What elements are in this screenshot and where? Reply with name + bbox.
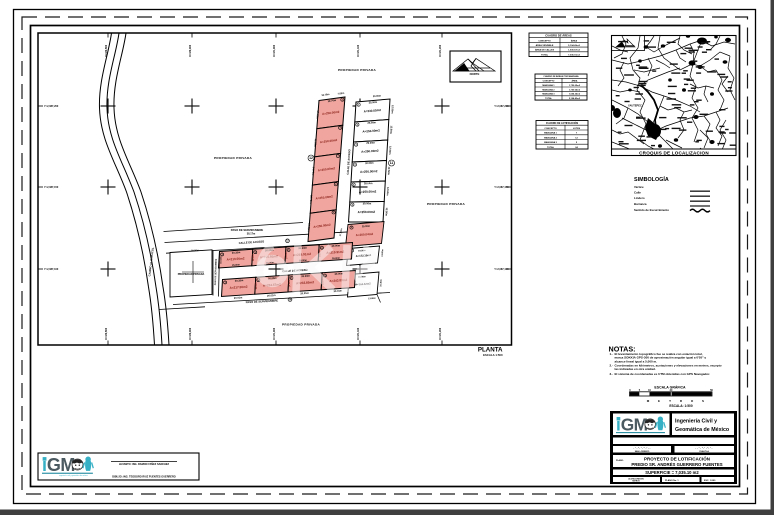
svg-text:PROPIEDAD PRIVADA: PROPIEDAD PRIVADA xyxy=(214,156,253,160)
svg-text:CONCEPTO: CONCEPTO xyxy=(538,40,551,42)
svg-text:Y=2,087,100: Y=2,087,100 xyxy=(494,268,509,271)
svg-text:29.00m: 29.00m xyxy=(191,250,199,252)
svg-text:DIBUJO: ING. TEODORO RUIZ: DIBUJO: ING. TEODORO RUIZ FUENTES GUERRE… xyxy=(112,476,176,479)
svg-text:20.01m: 20.01m xyxy=(267,294,276,298)
svg-text:24: 24 xyxy=(575,146,578,149)
svg-text:Y=2,087,150: Y=2,087,150 xyxy=(494,186,509,189)
svg-text:SUPERFICIE = 7,035.10 m2: SUPERFICIE = 7,035.10 m2 xyxy=(645,470,699,475)
svg-text:· ¹ · ²· ¹ ·´¹ ·¹ · ·: · ¹ · ²· ¹ ·´¹ ·¹ · · xyxy=(634,446,651,450)
svg-text:20.00m: 20.00m xyxy=(332,244,341,248)
svg-text:CONCEPTO: CONCEPTO xyxy=(543,81,555,83)
svg-text:12.50m: 12.50m xyxy=(384,207,388,216)
svg-text:7,035.10m2: 7,035.10m2 xyxy=(568,54,580,56)
svg-text:1,750.04m2: 1,750.04m2 xyxy=(569,88,581,91)
svg-text:CUADRO DE LOTIFICACIÓN: CUADRO DE LOTIFICACIÓN xyxy=(546,122,578,125)
svg-text:PREDIO SR. ANDRÉS GUERRERO: PREDIO SR. ANDRÉS GUERRERO FUENTES xyxy=(631,462,722,467)
svg-text:CUAUTLA: CUAUTLA xyxy=(699,450,709,453)
svg-text:MANZANA 3: MANZANA 3 xyxy=(542,93,555,96)
svg-text:12: 12 xyxy=(309,156,313,160)
svg-text:O: O xyxy=(691,399,694,403)
svg-text:GM: GM xyxy=(621,414,648,434)
svg-text:CALLE DE ACCESO: CALLE DE ACCESO xyxy=(239,239,265,245)
svg-text:ingeniería civil y geomática d: ingeniería civil y geomática de méxico xyxy=(59,474,87,477)
svg-text:SAN LORENZO: SAN LORENZO xyxy=(635,450,650,453)
svg-text:CROQUIS DE LOCALIZACION: CROQUIS DE LOCALIZACION xyxy=(639,150,709,155)
svg-text:1: 1 xyxy=(225,282,226,284)
svg-text:5,104.43m2: 5,104.43m2 xyxy=(569,97,581,100)
svg-text:20.01m: 20.01m xyxy=(234,296,243,300)
svg-text:Geomática de México: Geomática de México xyxy=(675,427,730,433)
svg-text:3: 3 xyxy=(288,250,289,252)
svg-text:CUADRO DE ÁREAS POR MANZANA: CUADRO DE ÁREAS POR MANZANA xyxy=(543,75,579,78)
svg-text:28.00m: 28.00m xyxy=(364,182,373,185)
svg-text:17.45m: 17.45m xyxy=(316,110,320,119)
svg-text:1,930.67m2: 1,930.67m2 xyxy=(568,50,580,52)
svg-text:Y=2,087,200: Y=2,087,200 xyxy=(494,105,509,108)
svg-text:MANZANA 2: MANZANA 2 xyxy=(542,88,555,91)
svg-text:CALLE DE ACCESO: CALLE DE ACCESO xyxy=(346,149,352,175)
svg-text:PLANO:: PLANO: xyxy=(616,459,624,462)
svg-text:Sentido de Escurrimiento: Sentido de Escurrimiento xyxy=(634,208,669,212)
svg-text:2: 2 xyxy=(255,252,256,254)
svg-text:1: 1 xyxy=(222,254,223,256)
svg-text:11: 11 xyxy=(390,161,394,165)
svg-text:12.50m: 12.50m xyxy=(388,146,392,155)
svg-text:13.82m: 13.82m xyxy=(368,298,376,300)
svg-text:NORTE: NORTE xyxy=(470,72,480,76)
svg-text:A=250.00m2: A=250.00m2 xyxy=(360,169,378,174)
svg-text:12.76m: 12.76m xyxy=(321,93,329,97)
svg-text:Calle: Calle xyxy=(634,191,641,195)
svg-text:3: 3 xyxy=(291,278,292,280)
svg-text:Lindero: Lindero xyxy=(634,196,645,200)
svg-text:E: E xyxy=(658,399,660,403)
svg-text:PLANO No. 1: PLANO No. 1 xyxy=(665,479,679,482)
svg-text:13.73m: 13.73m xyxy=(309,195,313,204)
svg-text:20.00m: 20.00m xyxy=(301,275,310,279)
svg-text:12.50m: 12.50m xyxy=(390,105,394,114)
svg-text:ESCALA 1:500: ESCALA 1:500 xyxy=(483,353,503,357)
svg-text:X=431,100: X=431,100 xyxy=(357,44,360,57)
svg-text:SIMBOLOGÍA: SIMBOLOGÍA xyxy=(634,175,669,183)
svg-text:1.-: 1.- xyxy=(610,352,614,356)
svg-text:20.35m: 20.35m xyxy=(232,251,241,255)
svg-text:PASO DE SERVIDUMBRE: PASO DE SERVIDUMBRE xyxy=(214,258,218,285)
svg-text:PROPIEDAD PRIVADA: PROPIEDAD PRIVADA xyxy=(178,273,205,276)
svg-text:El sistema de coordenadas es U: El sistema de coordenadas es UTM obtenid… xyxy=(615,372,711,376)
svg-text:Ingeniería Civil y: Ingeniería Civil y xyxy=(675,419,717,425)
svg-text:YAUTEPEC: YAUTEPEC xyxy=(628,104,642,108)
svg-text:METROS: METROS xyxy=(632,480,640,482)
svg-text:12.50m: 12.50m xyxy=(389,125,393,134)
svg-text:LOTES: LOTES xyxy=(573,128,581,130)
svg-text:· · ¹ · ² ·¹ ·¹´· ¹ ·: · · ¹ · ² ·¹ ·¹´· ¹ · xyxy=(696,446,713,450)
svg-text:A=250.00m2: A=250.00m2 xyxy=(358,210,376,214)
svg-text:CONCEPTO: CONCEPTO xyxy=(544,128,557,130)
svg-text:X=431,000: X=431,000 xyxy=(273,44,276,57)
svg-text:2.-: 2.- xyxy=(610,364,614,368)
svg-text:12: 12 xyxy=(575,137,578,139)
svg-text:1,750.05m2: 1,750.05m2 xyxy=(569,85,581,87)
svg-text:A=250.00m2: A=250.00m2 xyxy=(359,189,377,194)
svg-text:12.50m: 12.50m xyxy=(387,166,391,175)
svg-text:ESC. 1:500: ESC. 1:500 xyxy=(704,480,716,482)
svg-text:ÁREA VENDIBLE: ÁREA VENDIBLE xyxy=(536,44,554,47)
svg-text:GM: GM xyxy=(47,455,75,475)
svg-text:5,104.43m2: 5,104.43m2 xyxy=(568,44,580,47)
svg-text:30.00m: 30.00m xyxy=(365,162,374,165)
svg-text:TOTAL: TOTAL xyxy=(545,97,552,100)
svg-text:Y=2,087,200: Y=2,087,200 xyxy=(44,105,59,108)
svg-text:MANZANA 3: MANZANA 3 xyxy=(544,141,558,144)
svg-text:MANZANA 1: MANZANA 1 xyxy=(542,84,555,87)
svg-text:7: 7 xyxy=(576,133,578,135)
svg-text:13.82m: 13.82m xyxy=(382,249,385,257)
svg-text:ÁREA DE CALLES: ÁREA DE CALLES xyxy=(535,49,555,52)
svg-text:ESCALA: 1:500: ESCALA: 1:500 xyxy=(669,404,692,408)
svg-text:29.00m: 29.00m xyxy=(366,141,375,145)
svg-text:las indicadas en otra unidad.: las indicadas en otra unidad. xyxy=(615,367,656,371)
svg-text:Barranca: Barranca xyxy=(634,202,647,206)
svg-text:16.45m: 16.45m xyxy=(379,279,383,287)
svg-text:X=431,100: X=431,100 xyxy=(357,327,360,340)
svg-text:S: S xyxy=(702,399,704,403)
svg-text:M: M xyxy=(647,399,650,403)
svg-text:X=430,900: X=430,900 xyxy=(189,44,192,57)
svg-text:20.00m: 20.00m xyxy=(373,94,381,98)
svg-text:ÁREA: ÁREA xyxy=(571,39,578,42)
svg-text:X=431,200: X=431,200 xyxy=(439,44,442,57)
svg-text:Vértice: Vértice xyxy=(634,185,644,189)
svg-text:3.-: 3.- xyxy=(610,372,614,376)
svg-text:X=430,900: X=430,900 xyxy=(189,327,192,340)
svg-text:Y=2,087,150: Y=2,087,150 xyxy=(44,186,59,189)
svg-text:X=431,200: X=431,200 xyxy=(439,327,442,340)
svg-text:PROPIEDAD PRIVADA: PROPIEDAD PRIVADA xyxy=(427,202,466,206)
svg-text:MANZANA 1: MANZANA 1 xyxy=(544,132,558,135)
svg-text:PROPIEDAD PRIVADA: PROPIEDAD PRIVADA xyxy=(338,68,377,72)
svg-text:12.03m: 12.03m xyxy=(313,138,317,147)
svg-text:15.03m: 15.03m xyxy=(220,256,222,264)
svg-text:TOTAL: TOTAL xyxy=(547,146,555,149)
svg-text:14.76m: 14.76m xyxy=(311,167,315,176)
svg-text:T: T xyxy=(669,399,671,403)
svg-text:MANZANA 2: MANZANA 2 xyxy=(544,136,558,139)
svg-text:7.00m: 7.00m xyxy=(337,92,344,96)
svg-text:14.03m: 14.03m xyxy=(307,223,311,232)
svg-text:X=430,800: X=430,800 xyxy=(105,327,108,340)
svg-text:R: R xyxy=(680,399,683,403)
svg-text:Y=2,087,100: Y=2,087,100 xyxy=(44,268,59,271)
svg-text:PROYECTO DE LOTIFICACIÓN: PROYECTO DE LOTIFICACIÓN xyxy=(644,454,710,461)
svg-text:PROPIEDAD PRIVADA: PROPIEDAD PRIVADA xyxy=(282,323,321,327)
svg-text:29.00m: 29.00m xyxy=(363,202,372,205)
svg-text:PASO DE SERVIDUMBRE: PASO DE SERVIDUMBRE xyxy=(231,228,264,232)
svg-text:12.50m: 12.50m xyxy=(386,187,390,196)
svg-text:1,604.34m2: 1,604.34m2 xyxy=(569,93,581,96)
svg-text:X=431,000: X=431,000 xyxy=(273,327,276,340)
svg-text:20.01m: 20.01m xyxy=(300,292,309,296)
svg-text:25.00m: 25.00m xyxy=(362,225,370,229)
svg-text:LEVANTO: ING. RAMON YAÑEZ: LEVANTO: ING. RAMON YAÑEZ SANCHEZ xyxy=(119,463,170,466)
svg-text:20.35m: 20.35m xyxy=(235,279,244,283)
svg-text:TOTAL: TOTAL xyxy=(541,53,549,56)
svg-text:ÁREA: ÁREA xyxy=(572,80,578,83)
svg-text:38.17m: 38.17m xyxy=(247,233,256,236)
